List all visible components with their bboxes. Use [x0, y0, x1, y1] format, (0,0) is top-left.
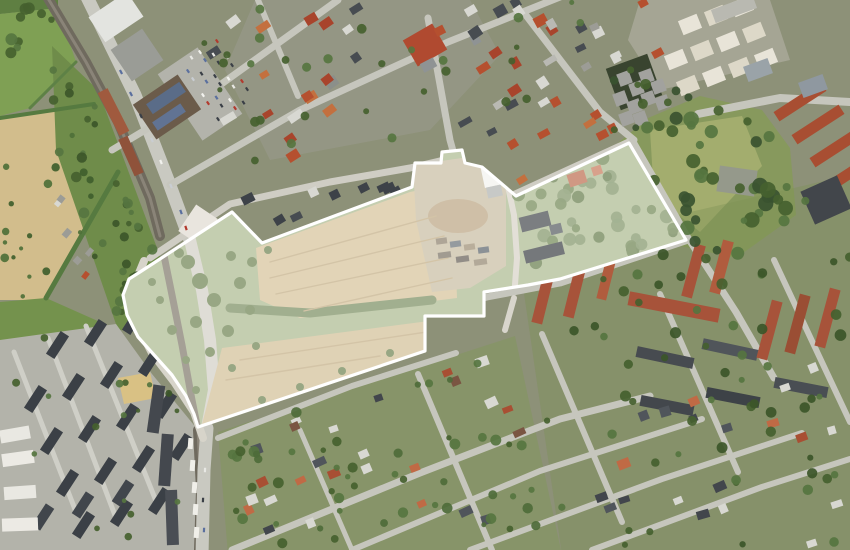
satellite-imagery	[0, 0, 850, 550]
white-flats-3	[4, 485, 37, 500]
white-flats-4	[2, 517, 38, 531]
aerial-photo-frame	[0, 0, 850, 550]
